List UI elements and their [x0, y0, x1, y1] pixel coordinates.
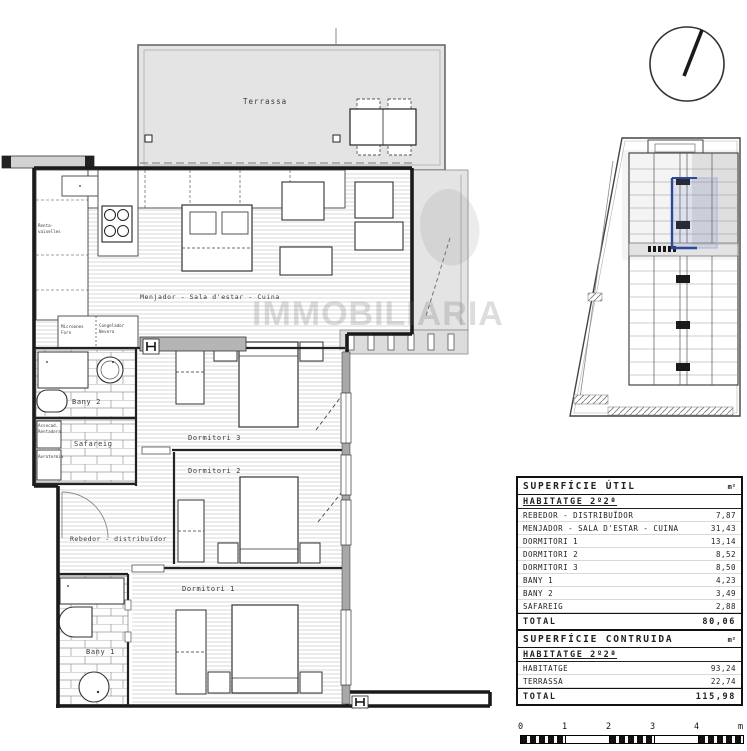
door-jamb — [125, 600, 131, 610]
sliding-door — [132, 565, 164, 572]
terrace: Terrassa — [138, 28, 445, 170]
table-subtitle: HABITATGE 2º2ª — [518, 648, 741, 662]
svg-text:Assecad.: Assecad. — [38, 423, 58, 428]
table-row: DORMITORI 113,14 — [518, 535, 741, 548]
highlighted-unit — [672, 178, 717, 248]
scale-label: 0 — [518, 722, 523, 732]
kitchen-island — [182, 205, 252, 271]
scale-bar-strip — [520, 735, 744, 744]
site-key-plan — [560, 125, 747, 425]
table-row: REBEDOR - DISTRIBUÏDOR7,87 — [518, 509, 741, 522]
rebedor-floor — [58, 487, 180, 572]
svg-text:Congelador: Congelador — [99, 323, 125, 328]
table-unit: m² — [728, 636, 736, 644]
table-subtitle: HABITATGE 2º2ª — [518, 495, 741, 509]
toilet — [37, 390, 67, 412]
table-row: BANY 23,49 — [518, 587, 741, 600]
scale-bar: 0 1 2 3 4 m — [516, 722, 747, 748]
party-wall-cap — [2, 156, 11, 168]
table-row: BANY 14,23 — [518, 574, 741, 587]
north-arrow — [640, 18, 740, 118]
bany1 — [58, 576, 128, 706]
dorm1-label: Dormitori 1 — [182, 585, 235, 593]
table-row: HABITATGE93,24 — [518, 662, 741, 675]
bed — [240, 477, 298, 563]
terrace-post — [333, 135, 340, 142]
svg-text:Nevera: Nevera — [99, 329, 115, 334]
bed — [232, 605, 298, 693]
table-row: SAFAREIG2,88 — [518, 600, 741, 613]
svg-text:vaixelles: vaixelles — [38, 229, 61, 234]
svg-text:Rentadora: Rentadora — [38, 429, 61, 434]
table-total-util: TOTAL80,06 — [518, 613, 741, 629]
svg-text:Microones: Microones — [61, 324, 84, 329]
table-unit: m² — [728, 483, 736, 491]
toilet — [79, 672, 109, 702]
scale-label: 4 — [694, 722, 699, 732]
living-label: Menjador - Sala d'estar - Cuina — [140, 293, 280, 301]
terrace-post — [145, 135, 152, 142]
scale-label: 2 — [606, 722, 611, 732]
floorplan-sheet: Terrassa — [0, 0, 747, 751]
hob — [102, 206, 132, 242]
terrace-label: Terrassa — [243, 97, 287, 106]
table-row: DORMITORI 28,52 — [518, 548, 741, 561]
bany2 — [36, 350, 136, 418]
table-header-construida: SUPERFÍCIE CONTRUIDA m² — [518, 629, 741, 648]
table-title: SUPERFÍCIE ÚTIL — [523, 481, 636, 492]
svg-text:Aerotermia: Aerotermia — [38, 454, 64, 459]
svg-text:Renta-: Renta- — [38, 223, 53, 228]
bed — [239, 342, 298, 427]
area-table: SUPERFÍCIE ÚTIL m² HABITATGE 2º2ª REBEDO… — [516, 476, 743, 706]
scale-label: 1 — [562, 722, 567, 732]
window-strip — [341, 352, 351, 704]
table-total-construida: TOTAL115,98 — [518, 688, 741, 704]
rebedor-label: Rebedor - distribuïdor — [70, 535, 167, 543]
bany2-label: Bany 2 — [72, 398, 101, 406]
bany1-label: Bany 1 — [86, 648, 115, 656]
svg-text:Forn: Forn — [61, 330, 72, 335]
table-row: DORMITORI 38,50 — [518, 561, 741, 574]
scale-label: 3 — [650, 722, 655, 732]
apartment-floorplan: Terrassa — [0, 0, 510, 751]
scale-label: m — [738, 722, 743, 732]
door-opening — [142, 447, 170, 454]
dorm2-label: Dormitori 2 — [188, 467, 241, 475]
table-title: SUPERFÍCIE CONTRUIDA — [523, 634, 673, 645]
table-header-util: SUPERFÍCIE ÚTIL m² — [518, 478, 741, 495]
table-row: MENJADOR - SALA D'ESTAR - CUINA31,43 — [518, 522, 741, 535]
safareig-label: Safareig — [74, 440, 113, 448]
dorm3-label: Dormitori 3 — [188, 434, 241, 442]
table-row: TERRASSA22,74 — [518, 675, 741, 688]
bathtub — [59, 607, 92, 637]
door-jamb — [125, 632, 131, 642]
